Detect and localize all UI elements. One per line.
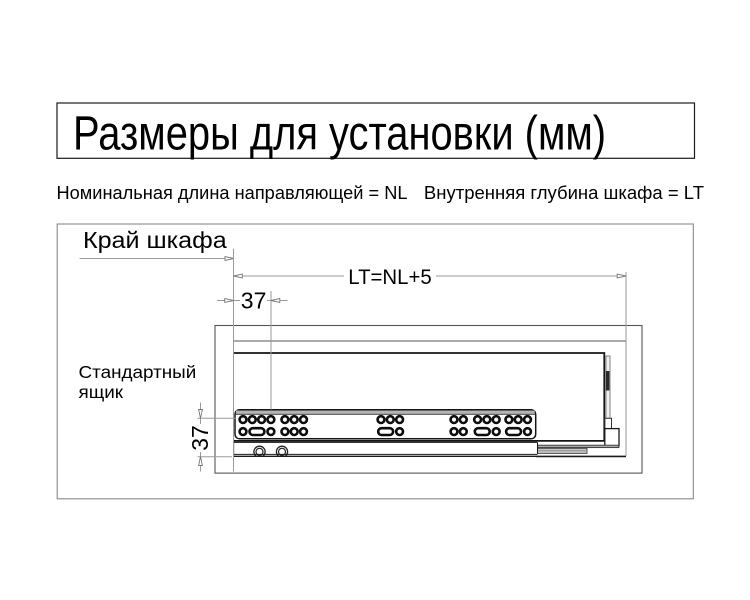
svg-text:ящик: ящик (79, 382, 125, 402)
svg-text:Край шкафа: Край шкафа (83, 228, 227, 254)
svg-text:Номинальная длина направляющей: Номинальная длина направляющей = NL (57, 182, 408, 203)
svg-text:Стандартный: Стандартный (79, 361, 197, 381)
svg-text:37: 37 (187, 425, 213, 451)
svg-text:37: 37 (241, 287, 267, 313)
svg-text:Внутренняя глубина шкафа = LT: Внутренняя глубина шкафа = LT (424, 182, 704, 203)
svg-text:LT=NL+5: LT=NL+5 (348, 265, 431, 289)
svg-text:Размеры для установки (мм): Размеры для установки (мм) (73, 107, 606, 160)
